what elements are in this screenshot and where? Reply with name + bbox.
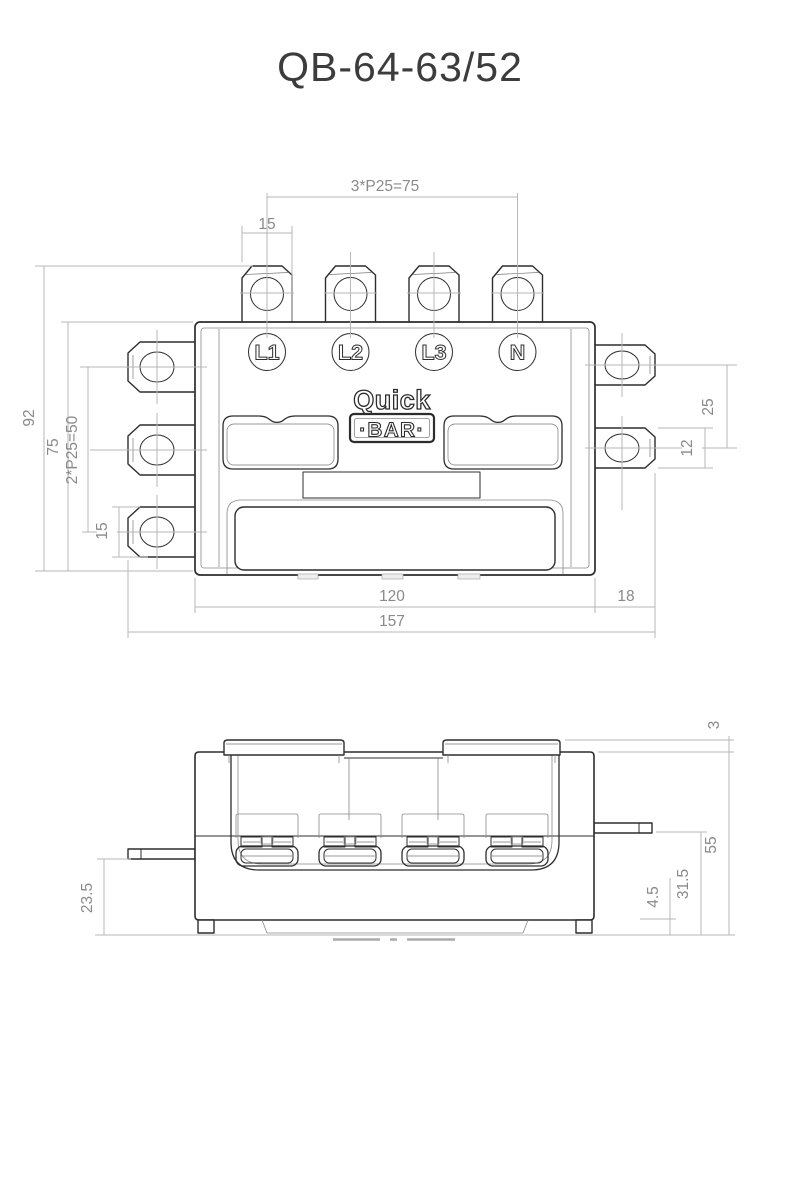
side-left-tab bbox=[128, 849, 195, 859]
dim-foot-height: 4.5 bbox=[645, 886, 662, 908]
terminal-label-n: N bbox=[510, 341, 526, 365]
side-view-drawing: 3 55 31.5 4.5 23.5 bbox=[79, 721, 735, 940]
terminal-label-l2: L2 bbox=[338, 341, 363, 365]
dim-right-pitch: 25 bbox=[700, 398, 717, 415]
dim-overall-height: 92 bbox=[21, 409, 38, 426]
dim-cover-height: 3 bbox=[706, 721, 723, 730]
dim-body-height: 75 bbox=[45, 438, 62, 455]
top-view-drawing: L1 L2 L3 N Quick ·BAR· bbox=[21, 178, 737, 638]
logo-bar-text: ·BAR· bbox=[359, 419, 425, 442]
dim-left-pitch: 2*P25=50 bbox=[64, 415, 81, 484]
dim-left-tab-offset: 23.5 bbox=[79, 883, 96, 913]
top-terminal-tabs bbox=[242, 266, 543, 322]
bottom-edge-tab bbox=[298, 574, 318, 579]
dim-top-pitch: 3*P25=75 bbox=[351, 178, 420, 195]
right-terminal-tabs bbox=[595, 345, 655, 468]
terminal-label-l1: L1 bbox=[254, 341, 279, 365]
bottom-edge-tab bbox=[382, 574, 403, 579]
dim-top-tab-width: 15 bbox=[258, 216, 275, 233]
bottom-edge-tab bbox=[458, 574, 480, 579]
dim-right-tab-width: 12 bbox=[679, 439, 696, 456]
side-right-tab bbox=[594, 823, 652, 833]
left-foot bbox=[198, 920, 214, 933]
dim-side-body-height: 55 bbox=[703, 836, 720, 853]
dim-overall-width: 157 bbox=[379, 613, 405, 630]
dim-right-tab-offset: 31.5 bbox=[675, 869, 692, 899]
technical-drawing-page: QB-64-63/52 bbox=[0, 0, 800, 1200]
label-well-inner bbox=[235, 507, 555, 570]
drawing-sheet: L1 L2 L3 N Quick ·BAR· bbox=[0, 0, 800, 1200]
right-foot bbox=[576, 920, 592, 933]
dim-left-tab-width: 15 bbox=[94, 522, 111, 539]
bottom-recess bbox=[262, 920, 528, 933]
dim-right-tab-length: 18 bbox=[617, 588, 634, 605]
center-recess bbox=[303, 472, 480, 498]
terminal-label-l3: L3 bbox=[421, 341, 446, 365]
dim-body-width: 120 bbox=[379, 588, 405, 605]
quickbar-logo: Quick ·BAR· bbox=[350, 385, 434, 442]
logo-quick-text: Quick bbox=[353, 385, 431, 415]
